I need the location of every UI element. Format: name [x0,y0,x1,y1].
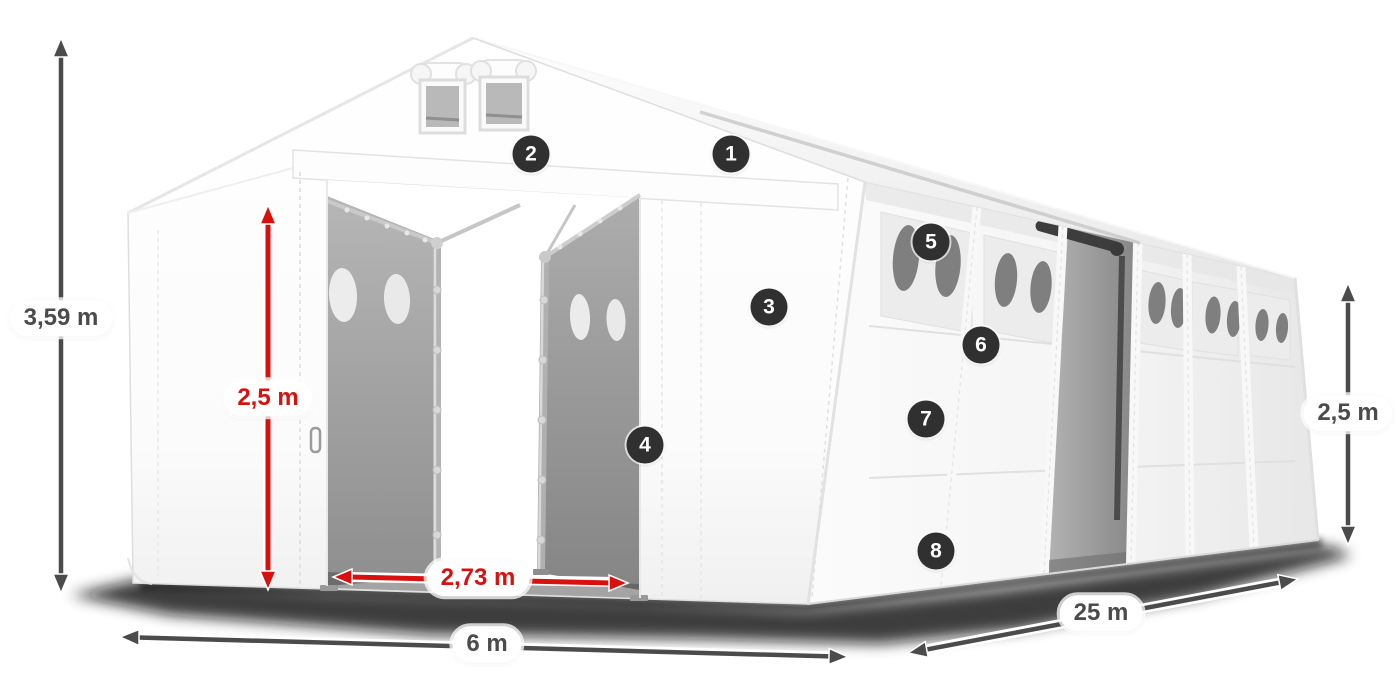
marker-3: 3 [751,289,788,326]
marker-2: 2 [513,136,550,173]
front-width-label: 6 m [452,626,521,662]
marker-1: 1 [713,136,750,173]
side-height-label: 2,5 m [1303,395,1392,431]
length-label: 25 m [1060,595,1143,631]
door-width-label: 2,73 m [427,560,530,596]
marker-8: 8 [918,533,955,570]
tent-dimensions-diagram: 3,59 m 2,5 m 2,73 m 6 m 25 m 2,5 m 1 2 3… [0,0,1400,700]
marker-6: 6 [963,327,1000,364]
door-height-label: 2,5 m [223,380,312,416]
marker-5: 5 [913,224,950,261]
dimension-arrows [0,0,1400,700]
total-height-label: 3,59 m [10,300,113,336]
marker-4: 4 [627,427,664,464]
marker-7: 7 [908,401,945,438]
